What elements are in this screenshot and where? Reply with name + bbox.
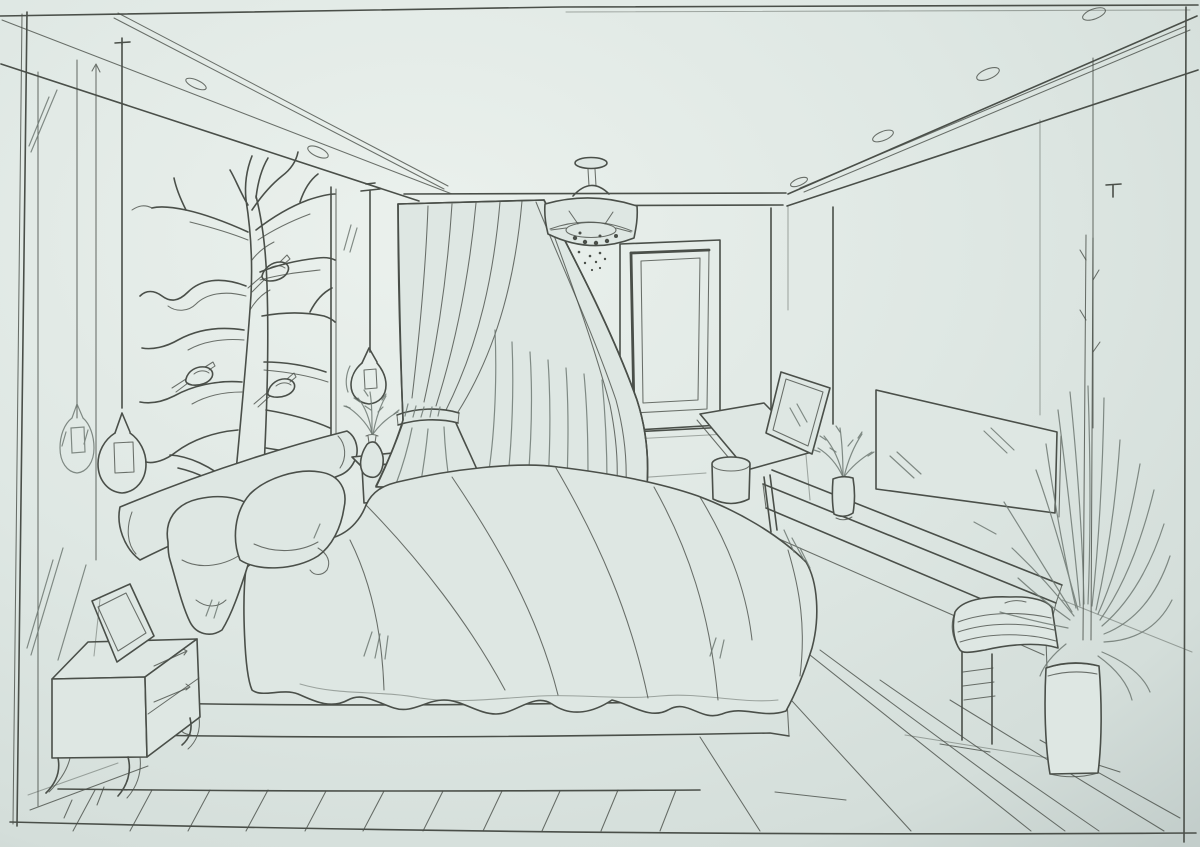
pouf-stool xyxy=(712,457,750,504)
sketch-photo xyxy=(0,0,1200,847)
bedroom-sketch xyxy=(0,0,1200,847)
folded-towels xyxy=(952,597,1058,652)
